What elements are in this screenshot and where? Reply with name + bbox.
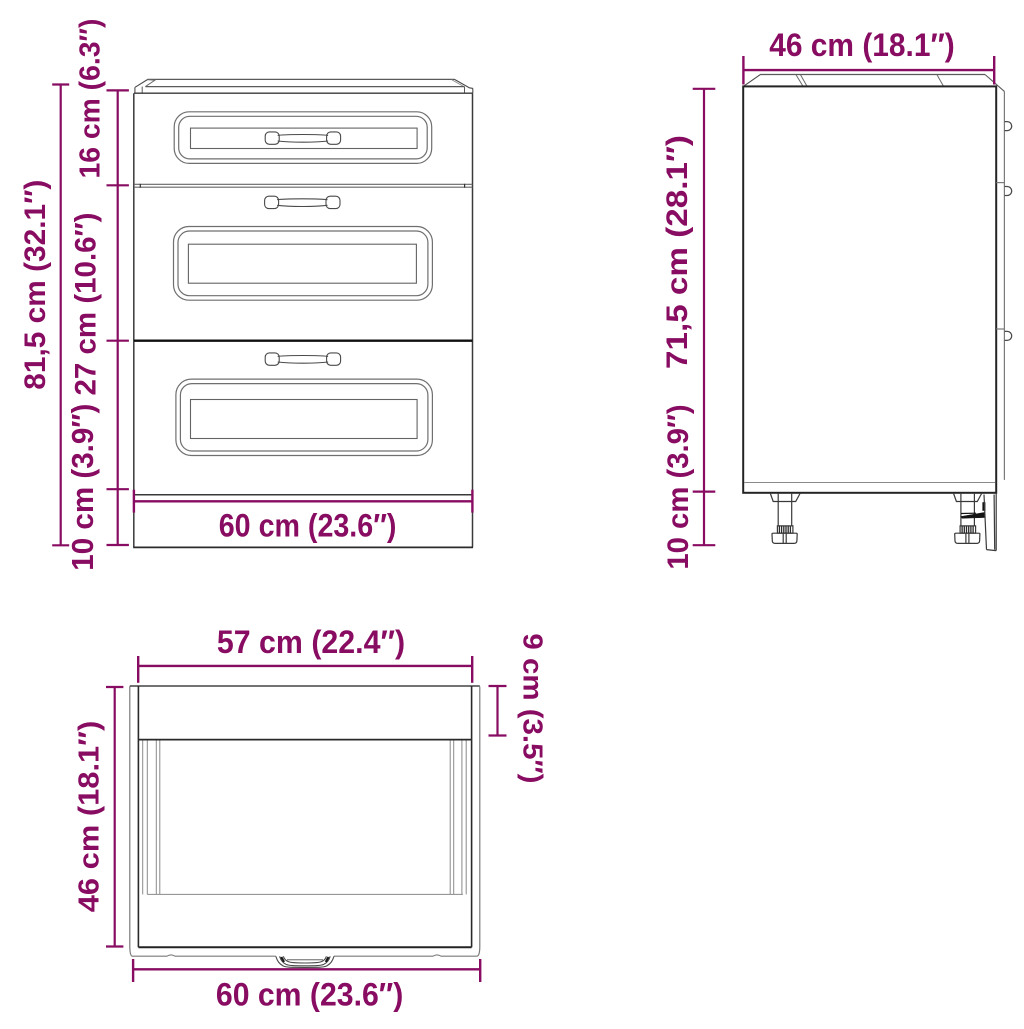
svg-text:46 cm (18.1″): 46 cm (18.1″) (769, 27, 955, 63)
svg-text:60 cm (23.6″): 60 cm (23.6″) (216, 976, 403, 1012)
svg-text:81,5 cm (32.1″): 81,5 cm (32.1″) (19, 180, 52, 390)
svg-text:16 cm (6.3″): 16 cm (6.3″) (75, 19, 107, 179)
svg-text:9 cm (3.5″): 9 cm (3.5″) (518, 633, 549, 783)
svg-text:10 cm (3.9″): 10 cm (3.9″) (662, 404, 695, 569)
svg-text:60 cm (23.6″): 60 cm (23.6″) (219, 507, 397, 543)
svg-text:71,5 cm (28.1″): 71,5 cm (28.1″) (661, 135, 694, 369)
svg-text:27 cm (10.6″): 27 cm (10.6″) (70, 213, 103, 396)
svg-text:46 cm (18.1″): 46 cm (18.1″) (74, 721, 106, 913)
svg-text:10 cm (3.9″): 10 cm (3.9″) (66, 404, 100, 571)
svg-text:57 cm (22.4″): 57 cm (22.4″) (217, 624, 405, 660)
